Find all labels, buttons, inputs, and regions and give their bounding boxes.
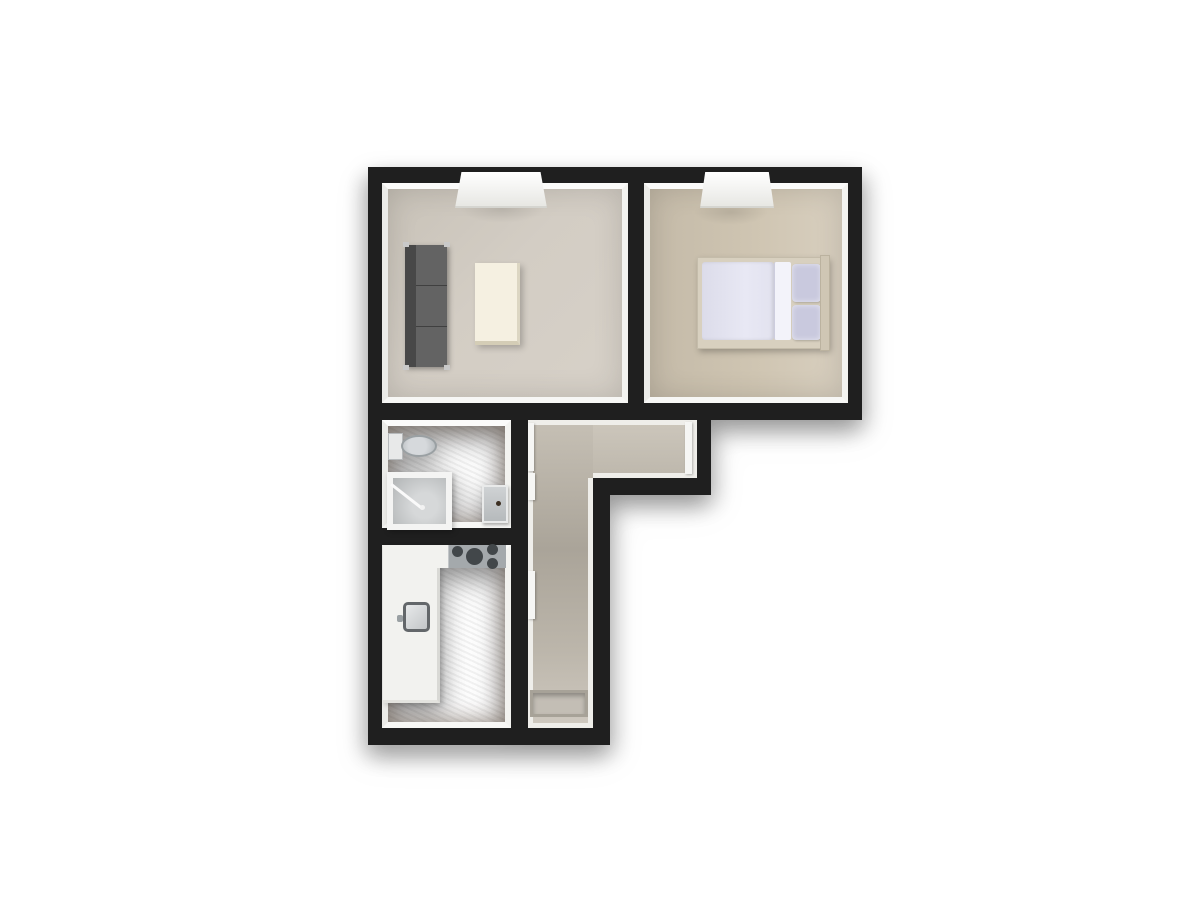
wall-living-bedroom-divider	[628, 167, 644, 420]
wall-corridor-right	[593, 478, 610, 745]
apartment-floor-plan	[368, 167, 862, 745]
hallway-wall-face-right-upper	[692, 420, 697, 478]
sofa-foot	[403, 365, 409, 370]
hallway-corridor	[528, 420, 593, 728]
pillow	[792, 264, 821, 302]
shower-tray	[393, 478, 446, 524]
entry-doormat	[530, 690, 588, 717]
sofa-backrest	[405, 245, 416, 367]
living-room-door	[528, 423, 534, 471]
wall-top	[368, 167, 862, 183]
bedroom-door	[685, 422, 692, 474]
sofa-foot	[444, 242, 450, 247]
shower-drain	[420, 505, 425, 510]
sofa	[405, 245, 447, 367]
burner	[466, 548, 483, 565]
wall-hallway-bottom	[593, 478, 711, 495]
sofa-cushion-seam	[416, 285, 447, 286]
hallway-wall-face-top	[528, 420, 697, 425]
wall-middle-horizontal	[368, 403, 862, 420]
floor-plan-canvas	[0, 0, 1200, 900]
kitchen-door	[528, 571, 535, 619]
corridor-wall-face-bottom	[528, 723, 593, 728]
wall-bathroom-kitchen-divider	[368, 528, 528, 545]
corridor-wall-face-right	[588, 478, 593, 728]
bed-duvet-fold	[774, 262, 791, 340]
hallway-wall-face-bottom-upper	[593, 473, 697, 478]
kitchen-counter-top	[437, 545, 448, 568]
bed-duvet	[702, 262, 774, 340]
wall-bottom	[368, 728, 610, 745]
wall-kitchen-corridor-divider	[511, 528, 528, 745]
burner	[487, 544, 498, 555]
bedroom-window	[700, 172, 774, 208]
coffee-table	[475, 263, 520, 345]
pillow	[792, 305, 821, 340]
kitchen-sink	[403, 602, 430, 632]
sofa-cushion-seam	[416, 326, 447, 327]
burner	[487, 558, 498, 569]
wall-right	[848, 167, 862, 420]
bathroom-door	[528, 473, 535, 500]
wall-bathroom-corridor-divider	[511, 403, 528, 545]
sofa-foot	[403, 242, 409, 247]
kitchen-faucet	[397, 615, 403, 622]
shower-enclosure	[387, 472, 452, 530]
sofa-foot	[444, 365, 450, 370]
living-room-window	[455, 172, 547, 208]
burner	[452, 546, 463, 557]
bed-headboard	[820, 255, 830, 351]
washbasin-drain	[496, 501, 501, 506]
washbasin	[482, 485, 508, 523]
wall-left	[368, 167, 382, 745]
toilet-bowl	[401, 435, 437, 457]
